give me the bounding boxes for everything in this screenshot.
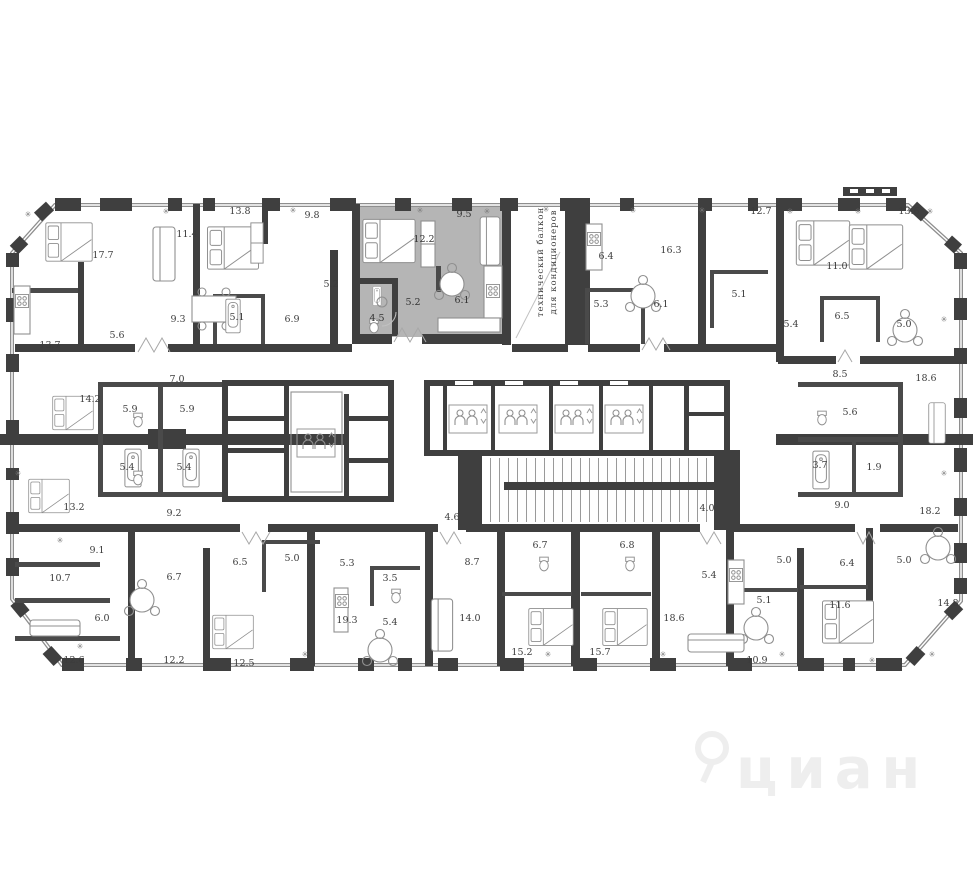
room-area-label: 18.6: [663, 613, 684, 624]
room-area-label: 12.2: [413, 234, 434, 245]
room-area-label: 4.5: [369, 313, 384, 324]
room-area-label: 5.4: [382, 617, 397, 628]
room-area-label: 5.9: [179, 404, 194, 415]
room-area-label: 10.7: [49, 573, 70, 584]
room-area-label: 7.0: [169, 374, 184, 385]
room-area-label: 5.4: [119, 462, 134, 473]
ac-unit-icon: ✳: [417, 206, 424, 215]
elevator-icon: [555, 405, 593, 433]
room-area-label: 5.4: [783, 319, 798, 330]
staircase: [484, 458, 714, 522]
room-area-label: 4.0: [699, 503, 714, 514]
ac-unit-icon: ✳: [545, 650, 552, 659]
ac-unit-icon: ✳: [163, 207, 170, 216]
room-area-label: 4.6: [444, 512, 459, 523]
toilet-icon: [540, 557, 549, 571]
toilet-icon: [626, 557, 635, 571]
room-area-label: 8.5: [832, 369, 847, 380]
room-area-label: 6.5: [232, 557, 247, 568]
room-area-label: 18.6: [915, 373, 936, 384]
room-area-label: 6.5: [834, 311, 849, 322]
ac-unit-icon: ✳: [630, 206, 637, 215]
room-area-label: 9.1: [89, 545, 104, 556]
room-area-label: 6.7: [166, 572, 181, 583]
room-area-label: 6.4: [839, 558, 854, 569]
room-area-label: 11.0: [826, 261, 847, 272]
sofa-icon: [431, 599, 452, 651]
toilet-icon: [134, 471, 143, 485]
room-area-label: 14.2: [79, 394, 100, 405]
room-area-label: 12.5: [233, 658, 254, 669]
room-area-label: 18.2: [919, 506, 940, 517]
balcony-note-line2: для кондиционеров: [549, 210, 559, 315]
ac-unit-icon: ✳: [25, 210, 32, 219]
bed-icon: [849, 225, 902, 269]
room-area-label: 5.1: [756, 595, 771, 606]
bed-icon: [796, 221, 849, 265]
room-area-label: 17.7: [92, 250, 113, 261]
room-area-label: 1.9: [866, 462, 881, 473]
ac-unit-icon: ✳: [941, 469, 948, 478]
room-area-label: 10.9: [746, 655, 767, 666]
toilet-icon: [818, 411, 827, 425]
room-area-label: 12.7: [750, 206, 771, 217]
room-area-label: 13.7: [39, 340, 60, 351]
room-area-label: 5.0: [284, 553, 299, 564]
elevator-icon: [449, 405, 487, 433]
bed-icon: [603, 609, 647, 646]
balcony-note: технический балкон для кондиционеров: [535, 207, 559, 317]
bed-icon: [46, 223, 92, 261]
ac-unit-icon: ✳: [927, 207, 934, 216]
ac-unit-icon: ✳: [941, 315, 948, 324]
elevator-icon: [499, 405, 537, 433]
ac-unit-icon: ✳: [660, 650, 667, 659]
room-area-label: 6.9: [284, 314, 299, 325]
room-area-label: 5.2: [323, 279, 338, 290]
room-area-label: 5.9: [122, 404, 137, 415]
room-area-label: 5.6: [842, 407, 857, 418]
stove-icon: [335, 594, 348, 607]
bed-icon: [213, 615, 254, 649]
ac-unit-icon: ✳: [855, 207, 862, 216]
ac-unit-icon: ✳: [869, 656, 876, 665]
room-area-label: 5.6: [109, 330, 124, 341]
table-icon: [921, 528, 956, 564]
ac-unit-icon: ✳: [699, 206, 706, 215]
room-area-label: 3.7: [812, 460, 827, 471]
room-area-label: 19.3: [336, 615, 357, 626]
ac-unit-icon: ✳: [787, 207, 794, 216]
watermark-text: циан: [736, 737, 929, 802]
stove-icon: [15, 294, 28, 307]
room-area-label: 16.3: [660, 245, 681, 256]
elevator-icon: [605, 405, 643, 433]
sofa-icon: [688, 634, 744, 652]
room-area-label: 13.6: [898, 206, 919, 217]
toilet-icon: [134, 413, 143, 427]
room-area-label: 5.3: [339, 558, 354, 569]
room-area-label: 14.0: [459, 613, 480, 624]
room-area-label: 6.8: [619, 540, 634, 551]
room-area-label: 5.0: [776, 555, 791, 566]
ac-unit-icon: ✳: [929, 650, 936, 659]
sofa-icon: [153, 227, 175, 281]
room-area-label: 5.0: [896, 555, 911, 566]
kitchen-counter: [438, 318, 500, 332]
ac-unit-icon: ✳: [15, 469, 22, 478]
ac-unit-icon: ✳: [290, 206, 297, 215]
room-area-label: 11.4: [176, 229, 197, 240]
room-area-label: 5.0: [896, 319, 911, 330]
room-area-label: 6.1: [653, 299, 668, 310]
cian-logo-icon: [698, 734, 726, 782]
room-area-label: 13.2: [63, 502, 84, 513]
room-area-label: 11.6: [829, 600, 850, 611]
room-area-label: 6.4: [598, 251, 613, 262]
bed-icon: [529, 609, 573, 646]
stove-icon: [587, 232, 600, 245]
room-area-label: 6.1: [454, 295, 469, 306]
room-area-label: 8.7: [464, 557, 479, 568]
room-area-label: 12.6: [63, 655, 84, 666]
watermark: циан: [698, 734, 929, 802]
right-core: [424, 380, 740, 530]
sofa-icon: [30, 620, 80, 636]
ac-unit-icon: ✳: [77, 642, 84, 651]
stove-icon: [486, 284, 499, 297]
room-area-label: 15.7: [589, 647, 610, 658]
room-area-label: 5.4: [701, 570, 716, 581]
floor-plan-canvas: 17.711.413.89.85.29.35.613.75.16.97.012.…: [0, 0, 973, 880]
room-area-label: 5.2: [405, 297, 420, 308]
room-area-label: 9.5: [456, 209, 471, 220]
sofa-icon: [480, 217, 500, 265]
ac-unit-icon: ✳: [302, 650, 309, 659]
room-area-label: 13.8: [229, 206, 250, 217]
room-area-label: 14.8: [937, 598, 958, 609]
bed-icon: [363, 219, 415, 262]
room-area-label: 5.1: [731, 289, 746, 300]
room-area-label: 15.2: [511, 647, 532, 658]
kitchen-counter: [586, 224, 602, 270]
ac-unit-icon: ✳: [484, 207, 491, 216]
wardrobe-icon: [251, 223, 263, 263]
balcony-note-line1: технический балкон: [535, 207, 546, 317]
room-area-label: 9.3: [170, 314, 185, 325]
room-area-label: 5.3: [593, 299, 608, 310]
room-area-label: 9.8: [304, 210, 319, 221]
room-area-label: 5.4: [176, 462, 191, 473]
room-area-label: 6.0: [94, 613, 109, 624]
ac-unit-icon: ✳: [779, 650, 786, 659]
room-area-label: 9.2: [166, 508, 181, 519]
room-area-label: 3.5: [382, 573, 397, 584]
kitchen-counter: [14, 286, 30, 334]
sofa-icon: [929, 403, 946, 444]
room-area-label: 12.2: [163, 655, 184, 666]
room-area-label: 6.7: [532, 540, 547, 551]
stove-icon: [729, 568, 742, 581]
room-area-label: 5.1: [229, 312, 244, 323]
room-area-label: 9.0: [834, 500, 849, 511]
toilet-icon: [392, 589, 401, 603]
ac-unit-icon: ✳: [57, 536, 64, 545]
floor-plan-page: 17.711.413.89.85.29.35.613.75.16.97.012.…: [0, 0, 973, 880]
